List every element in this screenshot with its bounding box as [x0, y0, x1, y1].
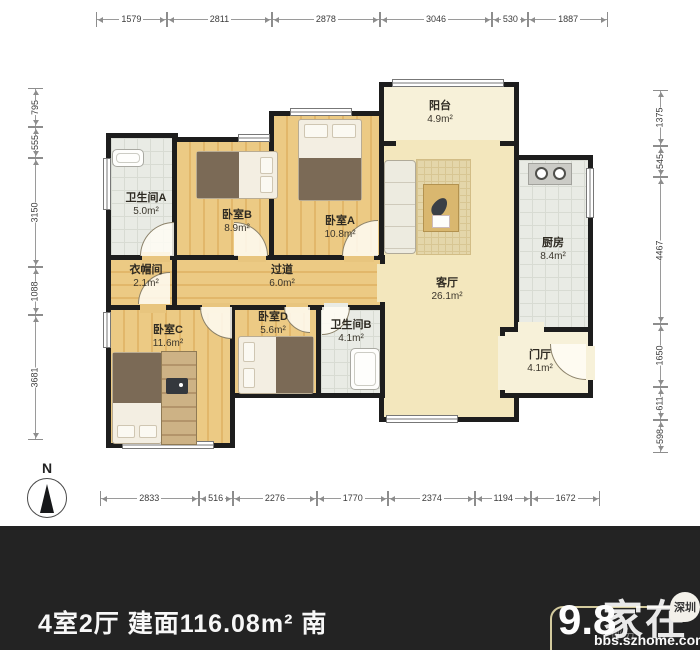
coffee-table-icon	[423, 184, 459, 232]
dimension-chain-bottom: 283351622761770237411941672	[100, 491, 600, 506]
compass-north-label: N	[24, 460, 70, 476]
sofa-icon	[384, 160, 416, 254]
room-label-bedroom-b: 卧室B 8.9m²	[222, 209, 252, 235]
dimension-value: 795	[29, 100, 42, 115]
compass: N	[24, 460, 70, 518]
dimension-chain-right: 137554544671650611598	[653, 90, 668, 453]
dimension-value: 545	[654, 154, 667, 169]
bed-icon	[298, 119, 362, 201]
dimension-chain-top: 15792811287830465301887	[96, 12, 608, 27]
room-label-bathroom-a: 卫生间A 5.0m²	[126, 192, 167, 218]
room-label-foyer: 门厅 4.1m²	[527, 349, 553, 375]
opening-corridor-living	[377, 264, 389, 302]
dimension-value: 3681	[29, 367, 42, 387]
dimension-segment: 3150	[28, 158, 43, 267]
wardrobe-icon	[161, 351, 197, 445]
tv-icon	[166, 378, 188, 394]
dimension-value: 1088	[29, 281, 42, 301]
room-label-corridor: 过道 6.0m²	[269, 264, 295, 290]
dimension-value: 1375	[654, 108, 667, 128]
room-label-bedroom-a: 卧室A 10.8m²	[324, 215, 355, 241]
window-living-icon	[386, 415, 458, 423]
opening-foyer-living	[498, 336, 510, 390]
dimension-segment: 3046	[380, 12, 493, 27]
listing-summary: 4室2厅 建面116.08m² 南	[38, 604, 327, 640]
bed-icon	[112, 352, 162, 444]
dimension-value: 530	[501, 15, 520, 24]
bottom-bar: 4室2厅 建面116.08m² 南 9.8 评分 家在 深圳 bbs.szhom…	[0, 526, 700, 650]
compass-icon	[27, 478, 67, 518]
window-balcony-icon	[392, 79, 504, 87]
dimension-segment: 598	[653, 420, 668, 453]
dimension-segment: 2276	[233, 491, 317, 506]
room-label-bathroom-b: 卫生间B 4.1m²	[331, 319, 372, 345]
bathtub-icon	[350, 348, 380, 390]
dimension-value: 2374	[420, 494, 444, 503]
dimension-value: 4467	[654, 240, 667, 260]
dimension-segment: 1887	[528, 12, 608, 27]
dimension-value: 611	[654, 397, 667, 411]
opening-cloakroom	[140, 303, 166, 313]
dimension-segment: 1375	[653, 90, 668, 146]
dimension-segment: 1672	[531, 491, 600, 506]
room-label-kitchen: 厨房 8.4m²	[540, 237, 566, 263]
bed-icon	[196, 151, 278, 199]
window-bedroom-c-side-icon	[103, 312, 111, 348]
dimension-segment: 611	[653, 387, 668, 420]
dimension-segment: 1088	[28, 267, 43, 315]
window-bedroom-a-icon	[290, 108, 352, 116]
room-label-cloakroom: 衣帽间 2.1m²	[130, 264, 163, 290]
dimension-segment: 2811	[167, 12, 272, 27]
dimension-segment: 795	[28, 88, 43, 127]
dimension-segment: 516	[199, 491, 233, 506]
dimension-segment: 555	[28, 127, 43, 159]
opening-entrance	[586, 346, 595, 380]
dimension-value: 1579	[119, 15, 143, 24]
opening-balcony-living	[396, 140, 500, 153]
watermark-site-url: bbs.szhome.com	[594, 632, 700, 648]
dimension-value: 1194	[492, 494, 515, 503]
room-label-balcony: 阳台 4.9m²	[427, 100, 453, 126]
dimension-value: 1672	[554, 494, 578, 503]
window-bathroom-a-icon	[103, 158, 111, 210]
dimension-segment: 545	[653, 146, 668, 177]
dimension-value: 3150	[29, 203, 42, 223]
dimension-segment: 2374	[388, 491, 475, 506]
dimension-value: 555	[29, 135, 42, 150]
dimension-value: 3046	[424, 15, 448, 24]
dimension-value: 516	[206, 494, 225, 503]
watermark-city-badge: 深圳	[670, 592, 700, 622]
opening-kitchen-foyer	[518, 322, 544, 336]
dimension-segment: 1194	[475, 491, 531, 506]
dimension-value: 2878	[314, 15, 338, 24]
floorplan-image: 卫生间A 5.0m² 卧室B 8.9m² 卧室A 10.8m² 阳台 4.9m²…	[0, 0, 700, 650]
dimension-value: 2833	[137, 494, 161, 503]
dimension-segment: 1579	[96, 12, 167, 27]
window-kitchen-icon	[586, 168, 594, 218]
dimension-segment: 1650	[653, 324, 668, 388]
dimension-segment: 2833	[100, 491, 199, 506]
dimension-segment: 2878	[272, 12, 380, 27]
sink-icon	[112, 149, 144, 167]
dimension-value: 1770	[341, 494, 365, 503]
dimension-value: 598	[654, 429, 667, 444]
dimension-segment: 3681	[28, 315, 43, 440]
dimension-value: 2276	[263, 494, 287, 503]
dimension-segment: 530	[492, 12, 528, 27]
stove-icon	[528, 163, 572, 185]
dimension-value: 1887	[556, 15, 580, 24]
room-label-bedroom-c: 卧室C 11.6m²	[153, 324, 183, 350]
dimension-value: 2811	[208, 15, 231, 24]
dimension-segment: 1770	[317, 491, 388, 506]
room-label-bedroom-d: 卧室D 5.6m²	[258, 311, 288, 337]
room-label-living: 客厅 26.1m²	[431, 277, 462, 303]
bed-icon	[238, 336, 314, 394]
dimension-segment: 4467	[653, 177, 668, 324]
window-bedroom-b-icon	[238, 134, 270, 142]
dimension-chain-left: 795555315010883681	[28, 88, 43, 440]
dimension-value: 1650	[654, 345, 667, 365]
